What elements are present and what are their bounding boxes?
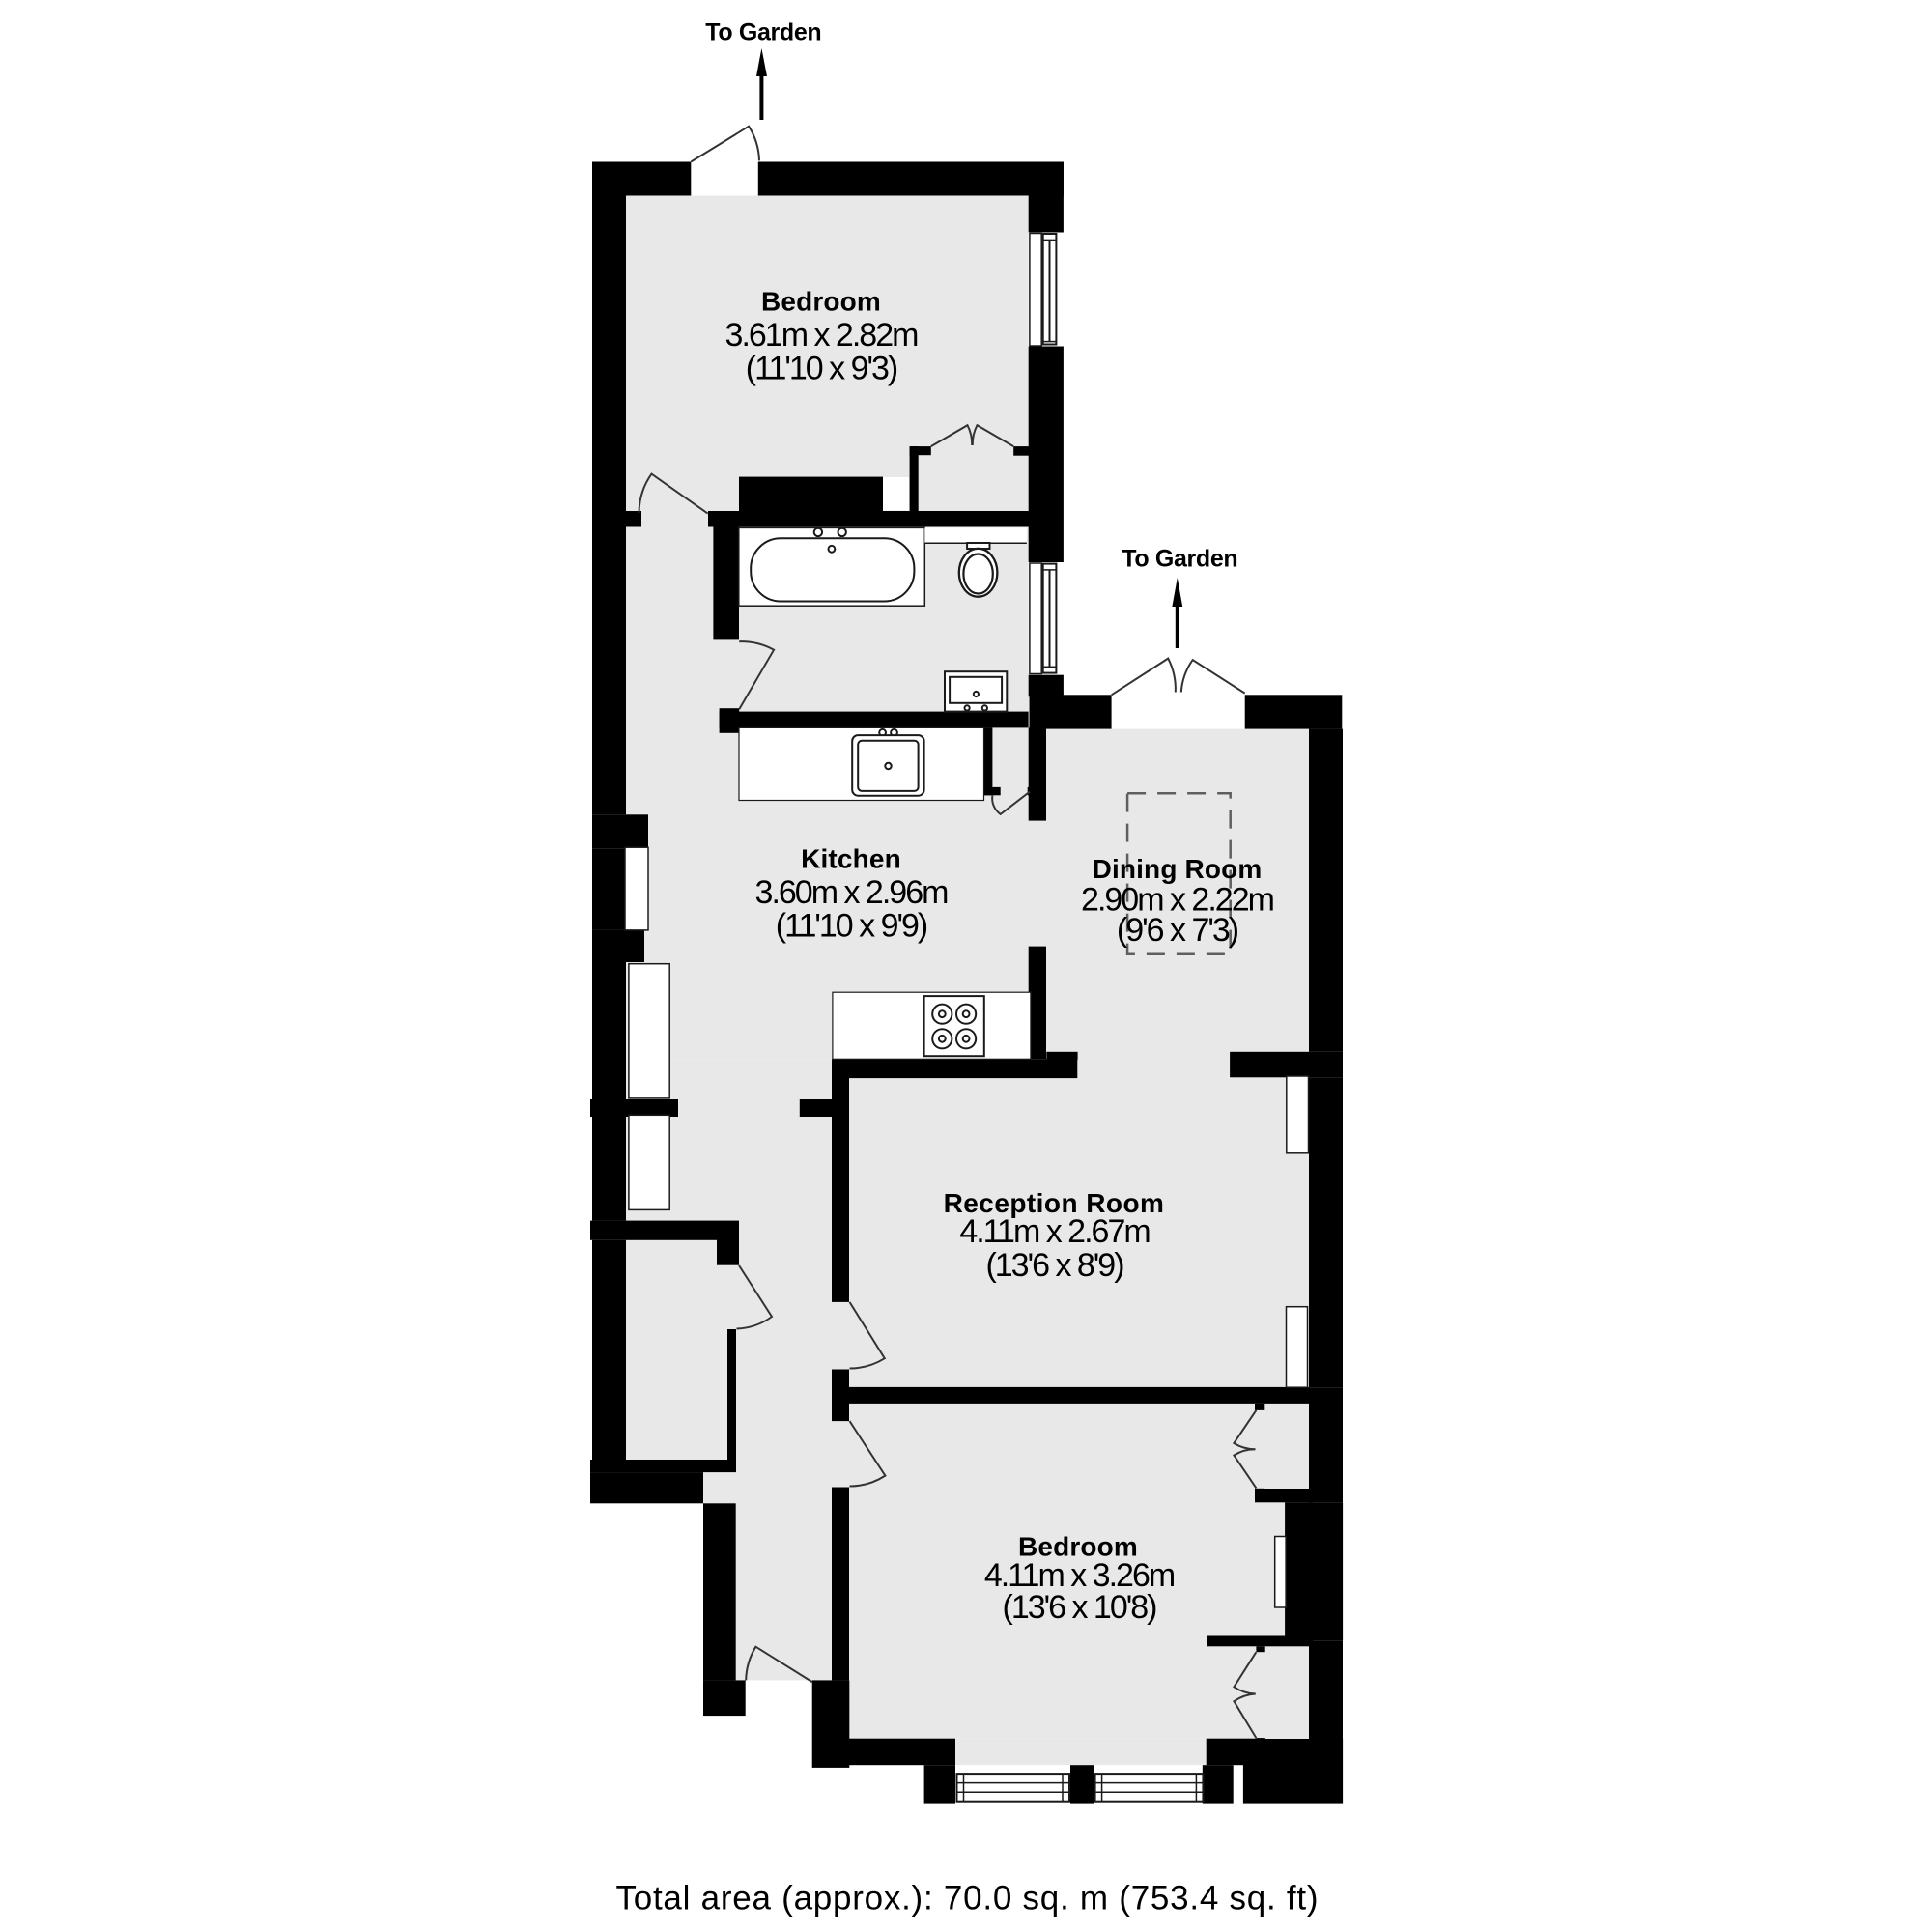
- svg-text:To Garden: To Garden: [705, 18, 821, 45]
- svg-text:(13'6 x 8'9): (13'6 x 8'9): [985, 1247, 1123, 1284]
- svg-text:Total area (approx.): 70.0 sq.: Total area (approx.): 70.0 sq. m (753.4 …: [615, 1880, 1319, 1918]
- svg-text:4.11m x 2.67m: 4.11m x 2.67m: [959, 1213, 1150, 1250]
- svg-text:(13'6 x 10'8): (13'6 x 10'8): [1003, 1589, 1157, 1626]
- svg-text:Bedroom: Bedroom: [761, 287, 881, 317]
- svg-text:(9'6 x 7'3): (9'6 x 7'3): [1117, 912, 1238, 949]
- svg-text:Kitchen: Kitchen: [801, 844, 901, 874]
- svg-text:3.61m x 2.82m: 3.61m x 2.82m: [725, 317, 919, 354]
- svg-text:(11'10 x 9'3): (11'10 x 9'3): [746, 350, 897, 386]
- svg-text:To Garden: To Garden: [1122, 546, 1237, 573]
- svg-text:(11'10 x 9'9): (11'10 x 9'9): [776, 907, 927, 944]
- svg-text:Dining Room: Dining Room: [1093, 854, 1263, 884]
- svg-text:3.60m x 2.96m: 3.60m x 2.96m: [755, 874, 949, 911]
